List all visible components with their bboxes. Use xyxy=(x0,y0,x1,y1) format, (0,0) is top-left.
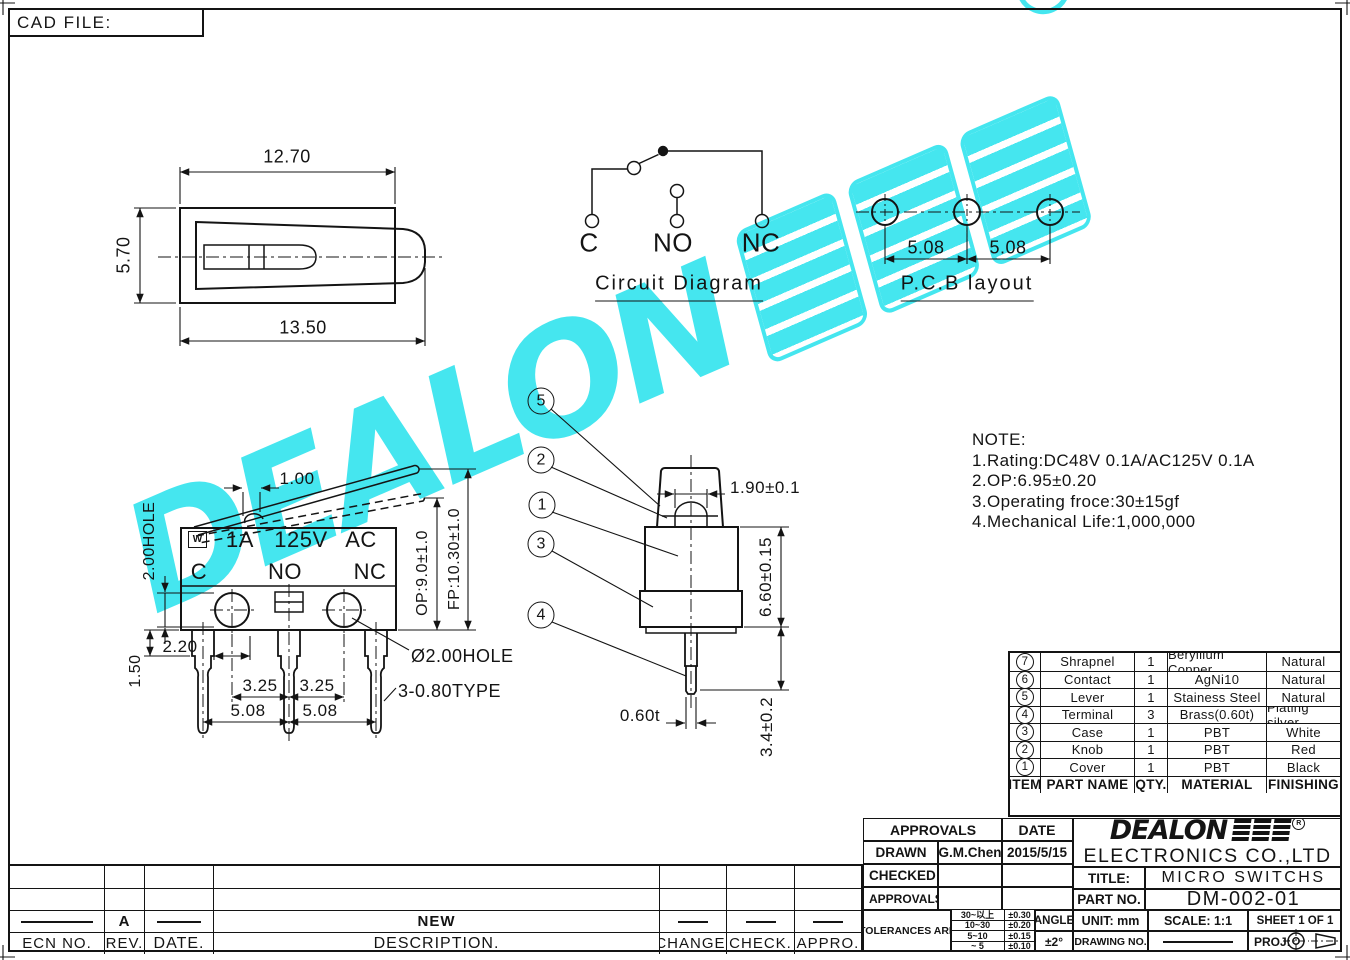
note-heading: NOTE: xyxy=(972,430,1255,451)
dim-pin-length: 3.4±0.2 xyxy=(757,697,777,757)
rev-empty-cell xyxy=(213,866,659,888)
parts-header-item: ITEM xyxy=(1010,776,1040,794)
parts-header-material: MATERIAL xyxy=(1167,776,1266,794)
dim-5-08-b: 5.08 xyxy=(302,701,337,721)
parts-finishing-cell: White xyxy=(1266,723,1340,741)
approvals-name-empty xyxy=(937,887,1003,910)
cad-file-box: CAD FILE: xyxy=(8,8,204,37)
rating-voltage: 125V xyxy=(274,527,327,553)
title-label: TITLE: xyxy=(1073,867,1145,889)
drawn-date: 2015/5/15 xyxy=(1001,841,1073,864)
callout-number: 1 xyxy=(538,496,547,514)
checked-label: CHECKED xyxy=(863,864,939,887)
item-number-badge: 4 xyxy=(1016,706,1034,723)
drawing-title: MICRO SWITCHS xyxy=(1145,867,1342,889)
dim-pin-thickness: 0.60t xyxy=(620,706,660,726)
rating-current: 1A xyxy=(226,527,254,553)
parts-qty-cell: 1 xyxy=(1134,723,1167,741)
callout-number: 4 xyxy=(537,606,546,624)
appro-dash-cell xyxy=(794,910,861,932)
rev-empty-cell xyxy=(104,866,144,888)
angle-value: ±2° xyxy=(1035,931,1073,952)
company-name: ELECTRONICS CO.,LTD xyxy=(1083,845,1331,867)
parts-header-finishing: FINISHING xyxy=(1266,776,1340,794)
terminal-no-label: NO xyxy=(268,559,302,585)
parts-name-cell: Shrapnel xyxy=(1040,653,1134,671)
rev-empty-cell xyxy=(144,866,213,888)
tolerances-label: TOLERANCES ARE xyxy=(863,910,952,952)
callout-4: 4 xyxy=(528,602,555,629)
circuit-diagram-linework xyxy=(586,146,769,228)
drawing-no-value xyxy=(1148,931,1248,952)
rating-ac: AC xyxy=(345,527,377,553)
tol-value: ±0.10 xyxy=(1004,941,1035,953)
dim-2-20: 2.20 xyxy=(162,637,197,657)
pcb-layout-linework xyxy=(856,194,1080,264)
tol-range: ~ 5 xyxy=(950,941,1005,953)
parts-name-cell: Lever xyxy=(1040,688,1134,706)
cad-file-label: CAD FILE: xyxy=(17,13,112,33)
parts-material-cell: PBT xyxy=(1167,758,1266,776)
item-number-badge: 7 xyxy=(1016,653,1034,671)
parts-material-cell: Beryllium Copper xyxy=(1167,653,1266,671)
parts-qty-cell: 1 xyxy=(1134,653,1167,671)
company-logo-cell: DEALON R ELECTRONICS CO.,LTD xyxy=(1073,818,1342,867)
parts-name-cell: Cover xyxy=(1040,758,1134,776)
parts-material-cell: PBT xyxy=(1167,741,1266,759)
rev-empty-cell xyxy=(794,888,861,910)
parts-item-cell: 2 xyxy=(1010,741,1040,759)
parts-qty-cell: 1 xyxy=(1134,758,1167,776)
dim-lever-offset: 1.00 xyxy=(279,469,314,489)
dim-fp: FP:10.30±1.0 xyxy=(446,508,464,610)
date-dash-cell xyxy=(144,910,213,932)
callout-number: 3 xyxy=(537,535,546,553)
logo-brand-text: DEALON xyxy=(1110,818,1228,844)
change-label: CHANGE. xyxy=(659,932,726,954)
parts-material-cell: Stainess Steel xyxy=(1167,688,1266,706)
blank-dash xyxy=(21,921,93,923)
change-dash-cell xyxy=(659,910,726,932)
circuit-terminal-no: NO xyxy=(653,228,693,259)
drawing-sheet: DEALON R xyxy=(0,0,1350,960)
parts-name-cell: Terminal xyxy=(1040,706,1134,724)
parts-finishing-cell: Black xyxy=(1266,758,1340,776)
part-number: DM-002-01 xyxy=(1145,889,1342,910)
unit-cell: UNIT: mm xyxy=(1073,910,1148,931)
parts-material-cell: PBT xyxy=(1167,723,1266,741)
rev-empty-cell xyxy=(659,866,726,888)
note-line: 1.Rating:DC48V 0.1A/AC125V 0.1A xyxy=(972,451,1255,472)
parts-item-cell: 4 xyxy=(1010,706,1040,724)
tolerances-table: 30~以上 ±0.30 10~30 ±0.20 5~10 ±0.15 ~ 5 ±… xyxy=(951,910,1035,952)
scale-cell: SCALE: 1:1 xyxy=(1148,910,1248,931)
parts-material-cell: AgNi10 xyxy=(1167,671,1266,689)
parts-finishing-cell: Red xyxy=(1266,741,1340,759)
dim-pin-type: 3-0.80TYPE xyxy=(398,681,501,702)
approvals-date-empty xyxy=(1001,887,1073,910)
rev-empty-cell xyxy=(144,888,213,910)
circuit-title: Circuit Diagram xyxy=(595,273,763,302)
rev-empty-cell xyxy=(10,888,104,910)
parts-name-cell: Knob xyxy=(1040,741,1134,759)
dim-body-height: 6.60±0.15 xyxy=(756,537,776,617)
ecn-dash-cell xyxy=(10,910,104,932)
parts-material-cell: Brass(0.60t) xyxy=(1167,706,1266,724)
terminal-c-label: C xyxy=(191,559,207,585)
dim-op: OP:9.0±1.0 xyxy=(414,530,432,616)
parts-qty-cell: 1 xyxy=(1134,688,1167,706)
circuit-terminal-c: C xyxy=(579,228,598,259)
parts-table: 7 Shrapnel 1 Beryllium Copper Natural 6 … xyxy=(1008,651,1342,817)
callout-number: 2 xyxy=(537,451,546,469)
note-line: 4.Mechanical Life:1,000,000 xyxy=(972,512,1255,533)
parts-qty-cell: 1 xyxy=(1134,741,1167,759)
item-number-badge: 3 xyxy=(1016,723,1034,740)
checked-name-empty xyxy=(937,864,1003,887)
dim-hole-dia: Ø2.00HOLE xyxy=(411,646,514,667)
certification-mark-icon: W xyxy=(188,531,207,548)
note-block: NOTE: 1.Rating:DC48V 0.1A/AC125V 0.1A 2.… xyxy=(972,430,1255,533)
item-number-badge: 6 xyxy=(1016,671,1034,688)
parts-header-part: PART NAME xyxy=(1040,776,1134,794)
note-line: 2.OP:6.95±0.20 xyxy=(972,471,1255,492)
callout-1: 1 xyxy=(529,492,556,519)
blank-dash xyxy=(813,921,843,923)
parts-item-cell: 1 xyxy=(1010,758,1040,776)
item-number-badge: 2 xyxy=(1016,741,1034,758)
item-number-badge: 1 xyxy=(1016,758,1034,775)
parts-name-cell: Contact xyxy=(1040,671,1134,689)
blank-dash xyxy=(746,921,776,923)
dim-1-50: 1.50 xyxy=(127,654,145,687)
date-header: DATE xyxy=(1001,818,1073,841)
drawn-label: DRAWN xyxy=(863,841,939,864)
pcb-pitch-b: 5.08 xyxy=(989,238,1026,259)
drawing-no-label: DRAWING NO. xyxy=(1073,931,1148,952)
rev-empty-cell xyxy=(213,888,659,910)
description-label: DESCRIPTION. xyxy=(213,932,659,954)
drawn-name: G.M.Chen xyxy=(937,841,1003,864)
callout-5: 5 xyxy=(528,388,555,415)
logo-cjk-glyph xyxy=(1272,819,1292,841)
rev-empty-cell xyxy=(10,866,104,888)
dim-height: 5.70 xyxy=(114,236,135,273)
parts-item-cell: 3 xyxy=(1010,723,1040,741)
approvals-row-label: APPROVALS xyxy=(863,887,939,910)
callout-number: 5 xyxy=(537,392,546,410)
ecn-no-label: ECN NO. xyxy=(10,932,104,954)
blank-dash xyxy=(157,921,201,923)
dim-3-25-b: 3.25 xyxy=(299,676,334,696)
parts-finishing-cell: Natural xyxy=(1266,653,1340,671)
blank-dash xyxy=(1163,941,1233,943)
pcb-title: P.C.B layout xyxy=(901,273,1034,302)
rev-empty-cell xyxy=(726,888,794,910)
parts-header-qty: QTY. xyxy=(1134,776,1167,794)
company-logo: DEALON R ELECTRONICS CO.,LTD xyxy=(1074,818,1341,867)
checked-date-empty xyxy=(1001,864,1073,887)
parts-qty-cell: 3 xyxy=(1134,706,1167,724)
note-line: 3.Operating froce:30±15gf xyxy=(972,492,1255,513)
logo-cjk-glyph xyxy=(1252,819,1272,841)
callout-2: 2 xyxy=(528,447,555,474)
registered-trademark-icon: R xyxy=(1292,818,1305,830)
revision-table: A NEW ECN NO. REV. DATE. DESCRIPTION. CH… xyxy=(8,864,863,952)
appro-label: APPRO. xyxy=(794,932,861,954)
rev-empty-cell xyxy=(726,866,794,888)
rev-empty-cell xyxy=(794,866,861,888)
circuit-terminal-nc: NC xyxy=(742,228,781,259)
dim-knob-width: 1.90±0.1 xyxy=(730,478,800,498)
parts-item-cell: 5 xyxy=(1010,688,1040,706)
pcb-pitch-a: 5.08 xyxy=(907,238,944,259)
side-view-linework xyxy=(551,409,789,729)
dim-hole: 2.00HOLE xyxy=(141,502,159,581)
dim-3-25-a: 3.25 xyxy=(242,676,277,696)
rev-empty-cell xyxy=(659,888,726,910)
check-dash-cell xyxy=(726,910,794,932)
logo-cjk-glyph xyxy=(1232,819,1252,841)
parts-item-cell: 6 xyxy=(1010,671,1040,689)
rev-label: REV. xyxy=(104,932,144,954)
angle-label: ANGLE xyxy=(1035,910,1073,931)
parts-qty-cell: 1 xyxy=(1134,671,1167,689)
blank-dash xyxy=(678,921,708,923)
check-label: CHECK. xyxy=(726,932,794,954)
rev-empty-cell xyxy=(104,888,144,910)
part-no-label: PART NO. xyxy=(1073,889,1145,910)
parts-finishing-cell: Natural xyxy=(1266,671,1340,689)
callout-3: 3 xyxy=(528,531,555,558)
date-label: DATE. xyxy=(144,932,213,954)
dim-top-width: 12.70 xyxy=(263,147,311,168)
approvals-header: APPROVALS xyxy=(863,818,1003,841)
sheet-cell: SHEET 1 OF 1 xyxy=(1248,910,1342,931)
parts-item-cell: 7 xyxy=(1010,653,1040,671)
item-number-badge: 5 xyxy=(1016,688,1034,705)
parts-finishing-cell: Natural xyxy=(1266,688,1340,706)
parts-finishing-cell: Plating silver xyxy=(1266,706,1340,724)
parts-name-cell: Case xyxy=(1040,723,1134,741)
terminal-nc-label: NC xyxy=(354,559,387,585)
description-value-cell: NEW xyxy=(213,910,659,932)
dim-5-08-a: 5.08 xyxy=(230,701,265,721)
dim-total-width: 13.50 xyxy=(279,318,327,339)
rev-value-cell: A xyxy=(104,910,144,932)
projection-cell: PROJ: xyxy=(1248,931,1342,952)
